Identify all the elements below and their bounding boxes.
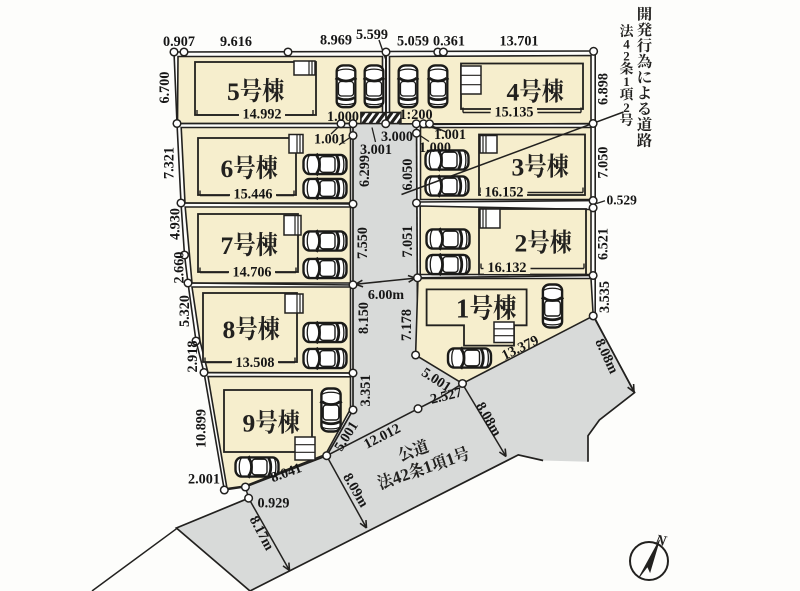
svg-text:16.152: 16.152 (484, 185, 523, 201)
svg-text:6.898: 6.898 (596, 73, 612, 105)
svg-text:7.050: 7.050 (596, 147, 612, 179)
svg-text:2.660: 2.660 (172, 252, 188, 284)
svg-text:5.059: 5.059 (397, 34, 429, 50)
svg-text:7.550: 7.550 (355, 227, 371, 259)
svg-text:3.535: 3.535 (597, 281, 613, 313)
svg-text:16.132: 16.132 (487, 260, 526, 276)
svg-text:6.00m: 6.00m (368, 288, 405, 303)
svg-text:0.929: 0.929 (258, 496, 290, 512)
svg-text:3.351: 3.351 (358, 375, 374, 407)
svg-text:6.050: 6.050 (400, 159, 416, 191)
svg-text:1.000: 1.000 (327, 109, 359, 125)
svg-text:4: 4 (507, 77, 520, 106)
svg-text:6: 6 (221, 154, 234, 183)
svg-text:6.521: 6.521 (596, 228, 612, 260)
svg-text:1: 1 (623, 74, 630, 89)
svg-text:3: 3 (512, 152, 525, 181)
svg-text:2.918: 2.918 (185, 341, 201, 373)
svg-text:13.508: 13.508 (235, 355, 274, 371)
svg-text:8: 8 (223, 315, 236, 344)
svg-text:2: 2 (515, 228, 528, 257)
svg-text:15.446: 15.446 (233, 187, 272, 203)
svg-text:9: 9 (243, 408, 256, 437)
svg-text:14.706: 14.706 (232, 265, 271, 281)
svg-text:0.907: 0.907 (163, 34, 195, 50)
svg-text:2.001: 2.001 (188, 472, 220, 488)
svg-text:15.135: 15.135 (494, 105, 533, 121)
svg-text:6.700: 6.700 (157, 72, 173, 104)
svg-text:2: 2 (623, 100, 630, 115)
svg-text:9.616: 9.616 (220, 34, 252, 50)
svg-text:7.321: 7.321 (162, 147, 178, 179)
svg-text:1: 1 (456, 294, 470, 324)
svg-text:14.992: 14.992 (242, 107, 281, 123)
svg-text:3.001: 3.001 (360, 142, 392, 158)
svg-text:4.930: 4.930 (168, 208, 184, 240)
svg-text:13.701: 13.701 (499, 34, 538, 50)
svg-text:1.000: 1.000 (419, 140, 451, 156)
svg-text:7.178: 7.178 (399, 309, 415, 341)
svg-text:2: 2 (623, 48, 630, 63)
svg-text:7: 7 (221, 231, 234, 260)
svg-text:6.299: 6.299 (357, 155, 373, 187)
svg-text:1.001: 1.001 (314, 132, 346, 148)
svg-text:0.529: 0.529 (607, 193, 638, 208)
svg-text:8.969: 8.969 (320, 33, 352, 49)
svg-text:1:200: 1:200 (399, 107, 432, 123)
svg-text:5: 5 (227, 77, 240, 106)
svg-text:10.899: 10.899 (194, 409, 210, 448)
svg-text:5.599: 5.599 (356, 27, 388, 43)
svg-text:5.320: 5.320 (177, 295, 193, 327)
svg-text:0.361: 0.361 (433, 34, 465, 50)
svg-text:7.051: 7.051 (400, 226, 416, 258)
svg-text:8.150: 8.150 (356, 302, 372, 334)
